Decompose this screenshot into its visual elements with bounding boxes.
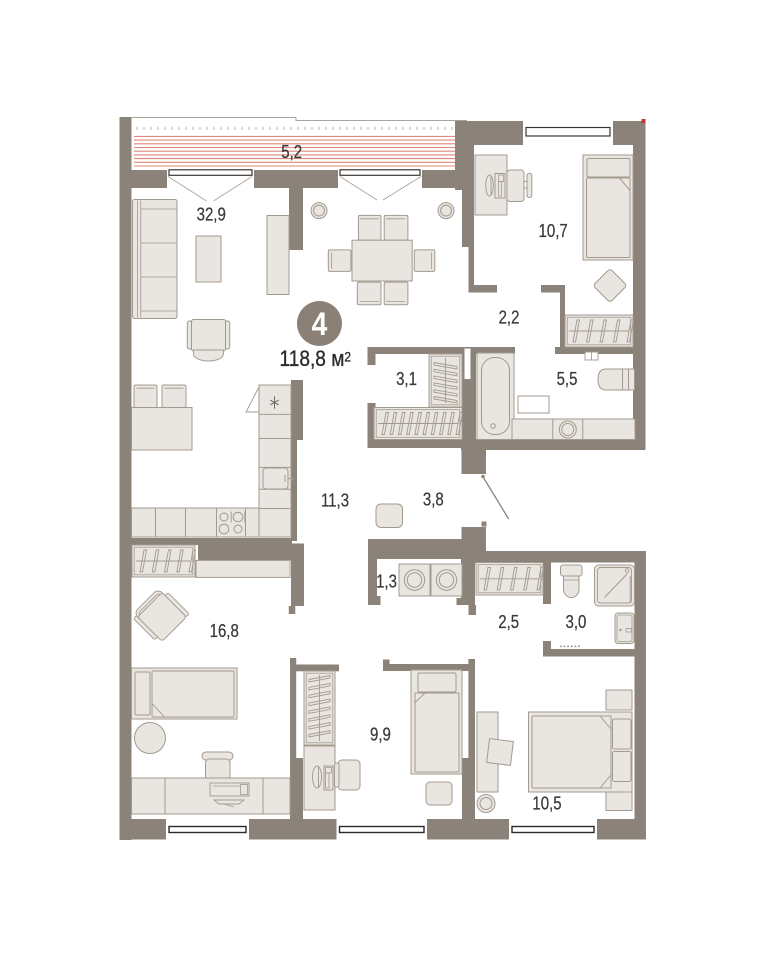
svg-text:10,7: 10,7 (539, 220, 568, 241)
svg-text:2,5: 2,5 (498, 611, 519, 632)
svg-text:5,5: 5,5 (557, 369, 578, 390)
svg-text:32,9: 32,9 (197, 204, 226, 225)
svg-text:1,3: 1,3 (376, 571, 397, 592)
svg-text:10,5: 10,5 (532, 793, 561, 814)
svg-text:3,8: 3,8 (423, 489, 444, 510)
svg-text:16,8: 16,8 (210, 621, 239, 642)
svg-text:3,0: 3,0 (565, 611, 586, 632)
svg-text:2,2: 2,2 (499, 307, 520, 328)
svg-text:9,9: 9,9 (370, 724, 391, 745)
svg-text:118,8 м2: 118,8 м2 (280, 346, 352, 371)
svg-text:3,1: 3,1 (396, 369, 417, 390)
svg-text:11,3: 11,3 (321, 490, 349, 511)
svg-text:4: 4 (312, 308, 328, 343)
svg-text:5,2: 5,2 (281, 141, 302, 162)
